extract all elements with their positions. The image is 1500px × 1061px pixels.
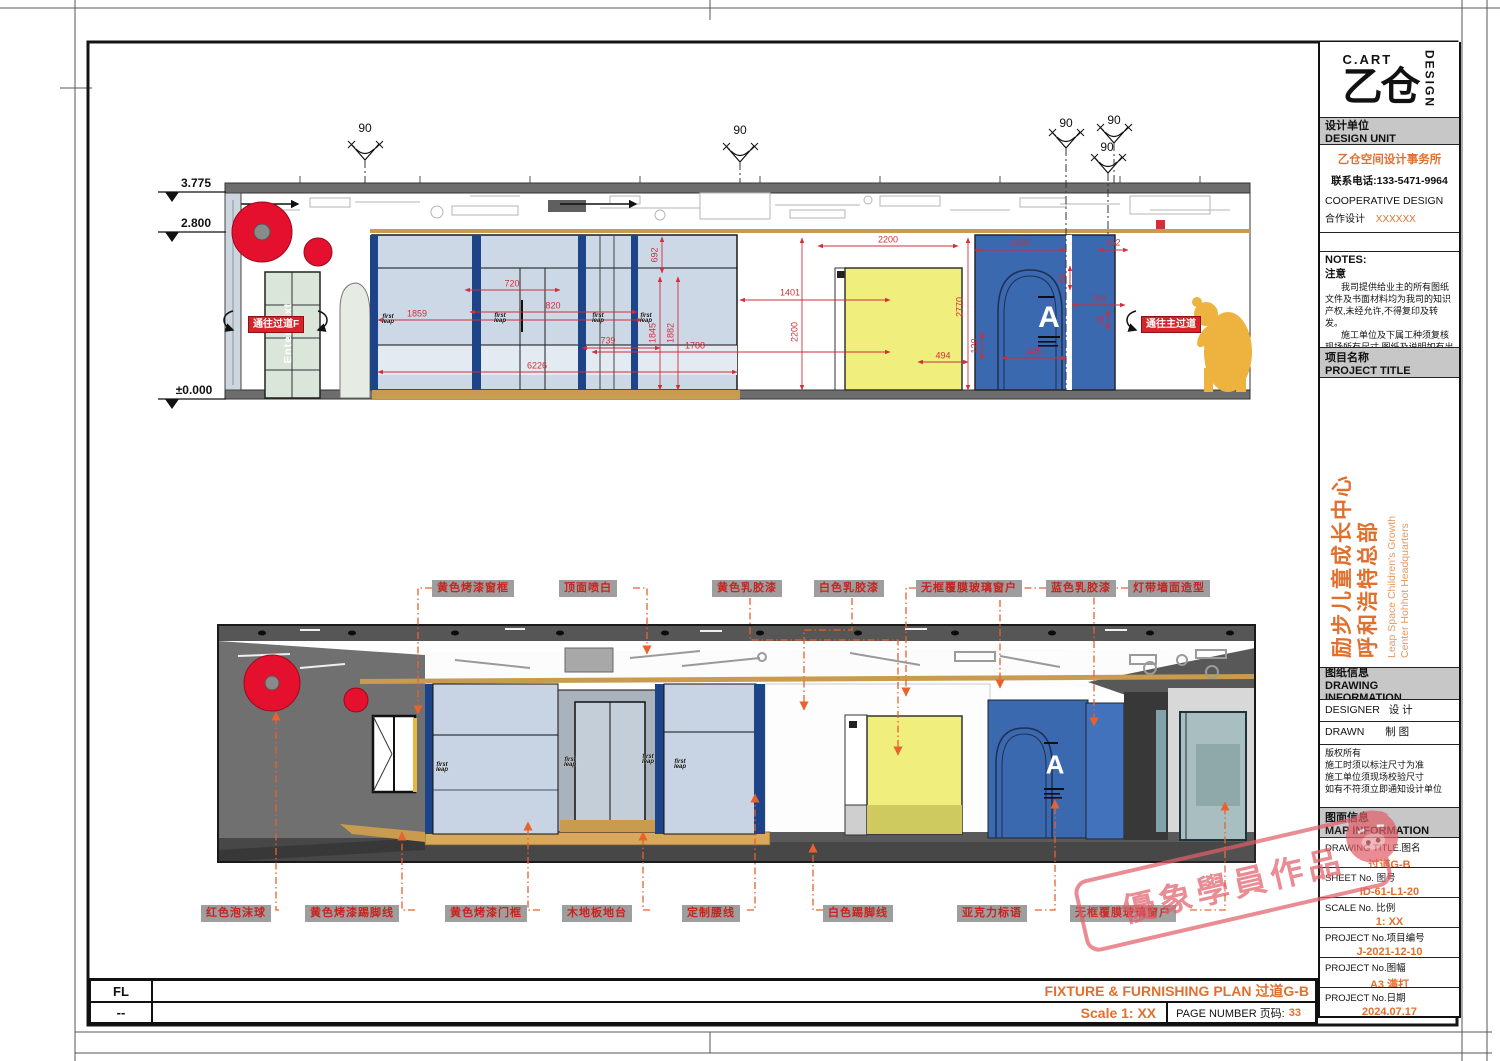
notes-paragraph-1: 我司提供给业主的所有图纸文件及书面材料均为我司的知识产权,未经允许,不得复印及转…	[1325, 281, 1454, 329]
enter-text-label: Enter text	[284, 303, 295, 364]
drawn-label-en: DRAWN	[1325, 726, 1364, 738]
company-name: 乙仓空间设计事务所	[1325, 151, 1454, 167]
coop-design-cn: 合作设计	[1325, 214, 1365, 225]
copyright-line-2: 施工时须以标注尺寸为准	[1325, 759, 1454, 771]
coop-design-value: XXXXXX	[1376, 214, 1416, 225]
elevation-view	[158, 124, 1252, 409]
page-number-cell: PAGE NUMBER 页码: 33	[1166, 1003, 1309, 1022]
logo-glyph: 乙仓	[1343, 67, 1419, 107]
ceiling-fixture-dark	[548, 200, 586, 212]
project-no-value: J-2021-12-10	[1325, 946, 1454, 958]
logo-text-design: DESIGN	[1423, 50, 1437, 108]
perspective-view	[218, 625, 1255, 862]
wood-base	[372, 390, 740, 399]
footer-title-bar: FL FIXTURE & FURNISHING PLAN 过道G-B -- Sc…	[88, 978, 1318, 1025]
project-name-en-2: Center Hohhot Headquarters	[1399, 388, 1412, 658]
door-sign-icon	[837, 271, 845, 278]
letter-a-perspective: A	[1046, 750, 1065, 781]
project-no-label: PROJECT No.项目编号	[1325, 930, 1454, 944]
design-unit-label-cn: 设计单位	[1325, 118, 1454, 133]
company-logo: C.ART 乙仓 DESIGN	[1325, 44, 1454, 115]
page-number-label: PAGE NUMBER 页码:	[1176, 1005, 1285, 1021]
corridor-badge-left: 通往过道F	[248, 316, 304, 333]
footer-code-dash: --	[91, 1003, 153, 1022]
designer-label-cn: 设 计	[1389, 704, 1413, 716]
project-title-vertical: 励步儿童成长中心 呼和浩特总部 Leap Space Children's Gr…	[1320, 378, 1459, 667]
sheet-scale: Scale 1: XX	[1081, 1005, 1157, 1021]
design-unit-label-en: DESIGN UNIT	[1325, 133, 1454, 145]
project-title-label-cn: 项目名称	[1325, 349, 1454, 365]
project-name-cn-1: 励步儿童成长中心	[1330, 388, 1356, 658]
letter-a-elevation: A	[1038, 301, 1060, 335]
project-name-cn-2: 呼和浩特总部	[1356, 388, 1382, 658]
wood-trim	[370, 229, 1250, 233]
footer-code-fl: FL	[91, 981, 153, 1001]
yellow-panel	[845, 268, 962, 390]
ceiling-projector	[565, 648, 613, 672]
date-label: PROJECT No.日期	[1325, 990, 1454, 1004]
red-foam-sphere-small	[304, 238, 332, 266]
sprinkler-red-icon	[1156, 220, 1165, 229]
blue-arch-wall-persp	[988, 700, 1088, 838]
date-value: 2024.07.17	[1325, 1006, 1454, 1018]
sheet-title: FIXTURE & FURNISHING PLAN 过道G-B	[153, 981, 1315, 1001]
phone: 联系电话:133-5471-9964	[1325, 173, 1454, 188]
paper-size-value: A3 满打	[1325, 976, 1454, 988]
leaf-panel	[340, 283, 370, 398]
yellow-window-frame	[413, 718, 417, 792]
page-number-value: 33	[1289, 1007, 1301, 1019]
coop-design-en: COOPERATIVE DESIGN	[1325, 195, 1454, 207]
copyright-line-1: 版权所有	[1325, 747, 1454, 759]
scale-value: 1: XX	[1325, 916, 1454, 928]
project-title-label-en: PROJECT TITLE	[1325, 365, 1454, 377]
drawing-info-label-en: DRAWING INFORMATION	[1325, 680, 1454, 701]
paper-size-label: PROJECT No.图幅	[1325, 960, 1454, 974]
copyright-line-3: 施工单位须现场校验尺寸	[1325, 771, 1454, 783]
corridor-badge-right: 通往主过道	[1141, 316, 1201, 333]
drawing-info-label-cn: 图纸信息	[1325, 668, 1454, 680]
designer-label-en: DESIGNER	[1325, 704, 1380, 716]
scale-label: SCALE No. 比例	[1325, 900, 1454, 914]
notes-paragraph-2: 施工单位及下属工种须复核现场所有尺寸,图纸及说明如有出入应及时报告。	[1325, 329, 1454, 348]
drawn-label-cn: 制 图	[1385, 726, 1409, 738]
project-name-en-1: Leap Space Children's Growth	[1386, 388, 1399, 658]
bear-figure	[1192, 297, 1252, 392]
drawing-sheet: 7201859820739622669218451882178814012200…	[0, 0, 1500, 1061]
notes-title-en: NOTES:	[1325, 254, 1454, 266]
notes-title-cn: 注意	[1325, 266, 1454, 281]
